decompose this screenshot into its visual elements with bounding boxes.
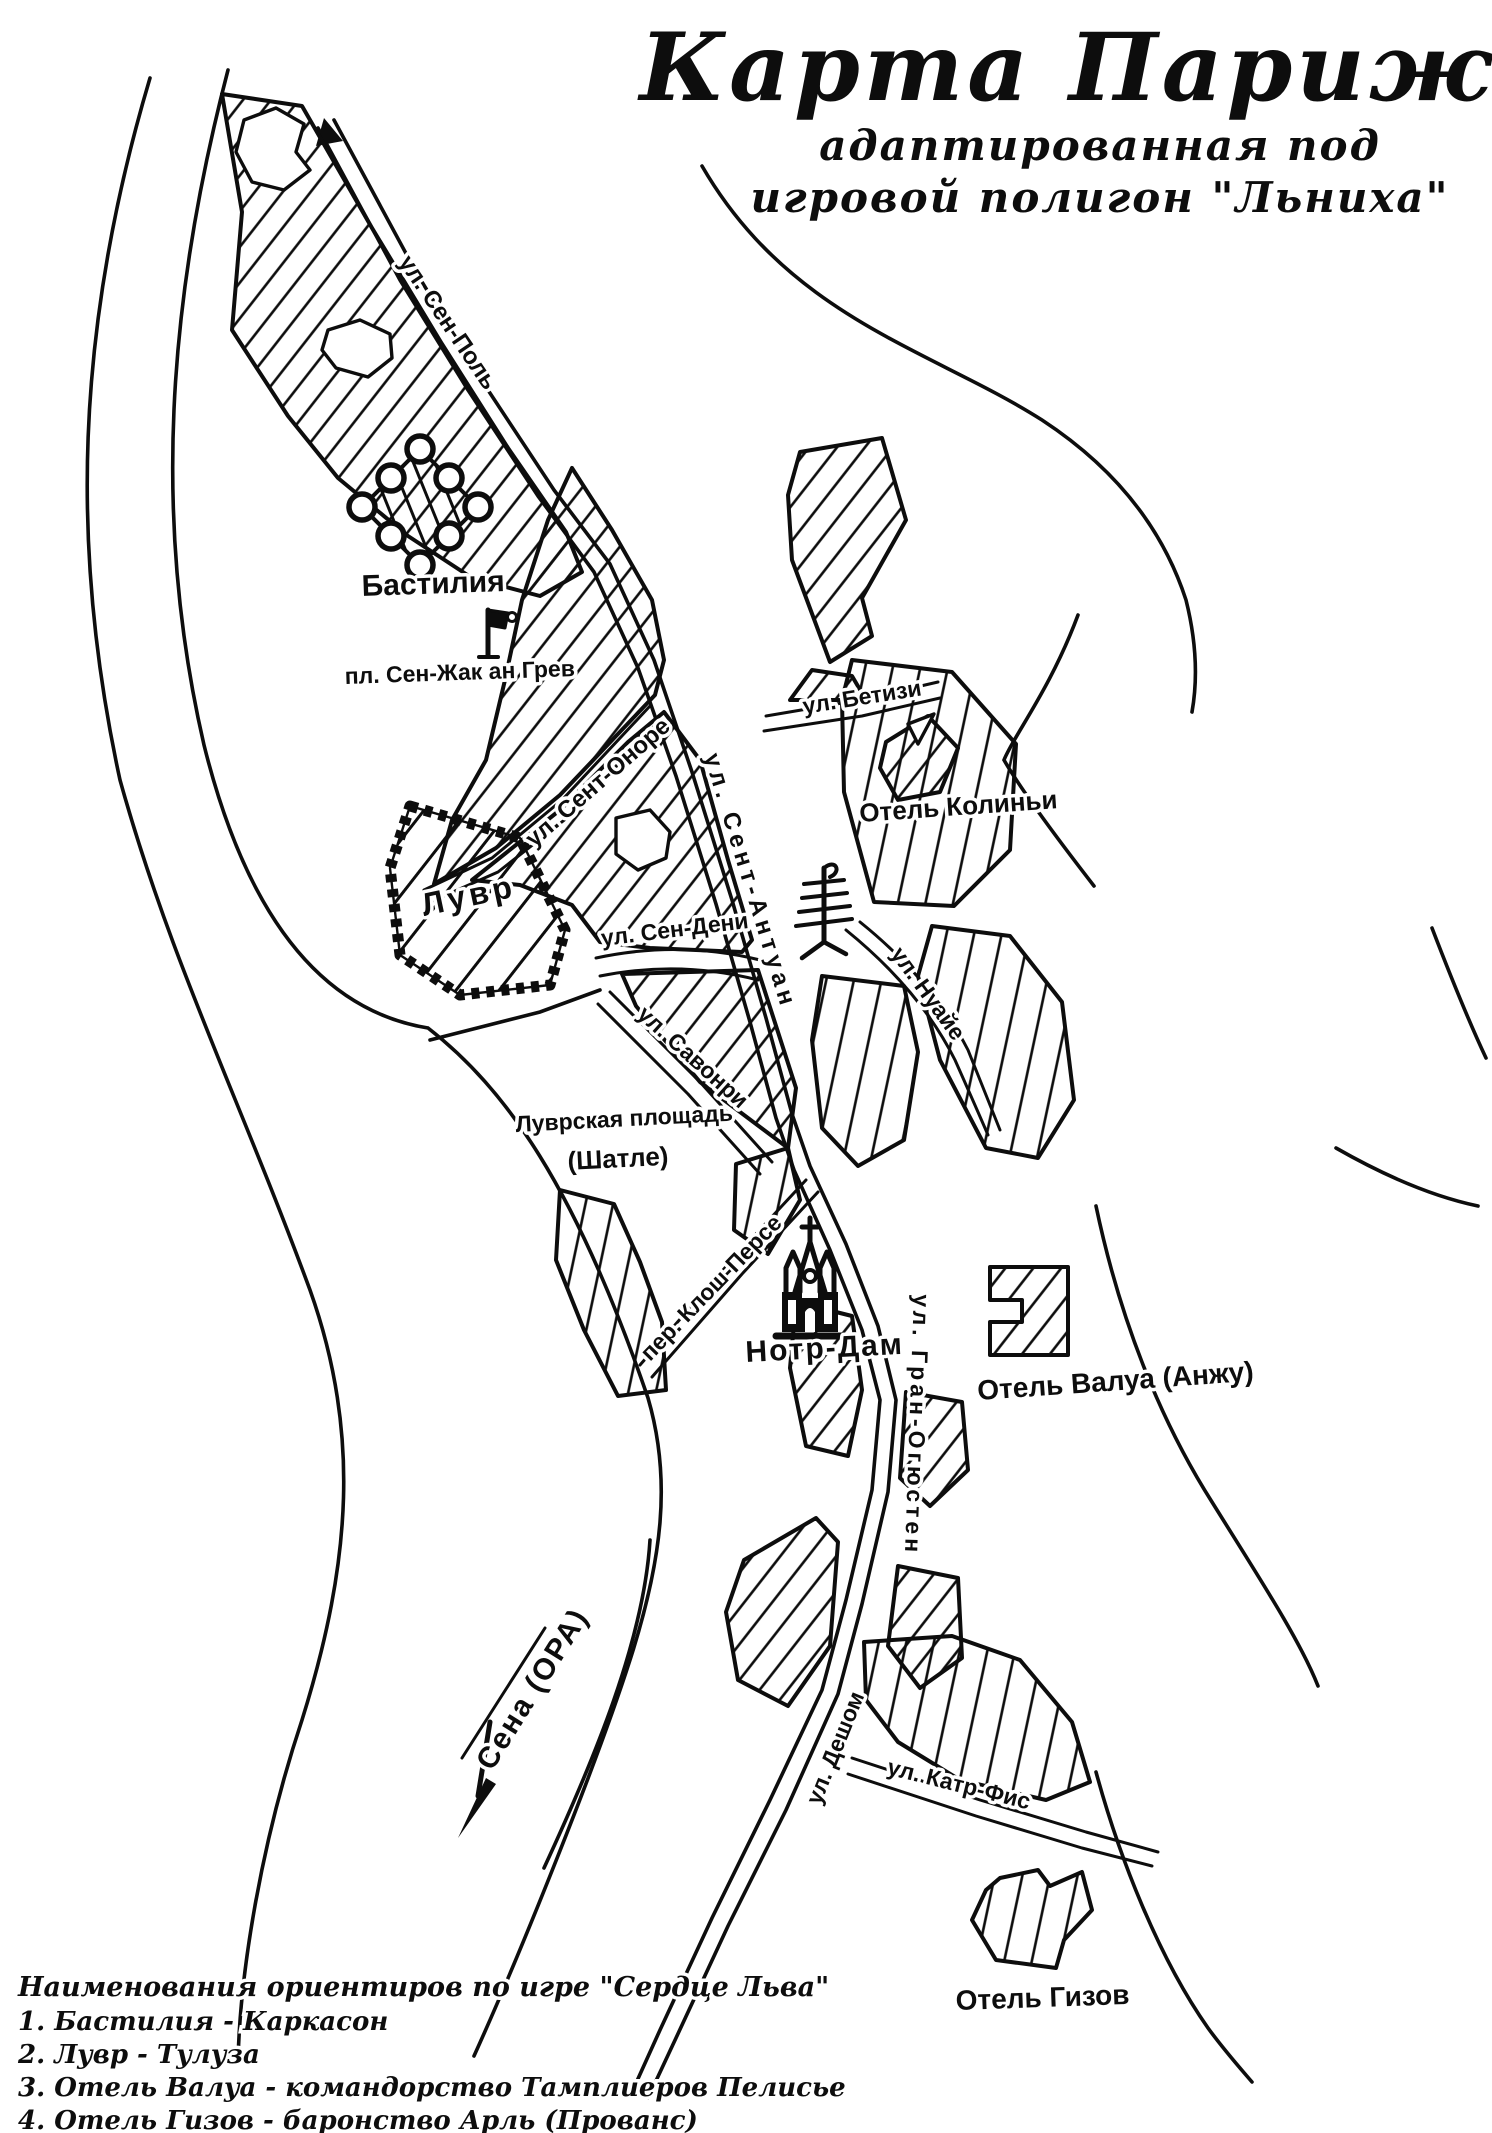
map-canvas: Бастилия пл. Сен-Жак ан Грев Лувр Отель … — [0, 0, 1492, 2133]
title-block: Карта Парижа адаптированная под игровой … — [637, 13, 1492, 222]
legend-item: 2. Лувр - Тулуза — [17, 2040, 260, 2070]
label-bastille: Бастилия — [361, 565, 505, 603]
legend-item: 1. Бастилия - Каркасон — [18, 2007, 388, 2037]
map-subtitle-line2: игровой полигон "Льниха" — [750, 173, 1449, 222]
map-title: Карта Парижа — [637, 13, 1492, 123]
legend-item: 4. Отель Гизов - баронство Арль (Прованс… — [18, 2106, 698, 2133]
label-louvre-square-alt: (Шатле) — [567, 1141, 669, 1176]
map-subtitle-line1: адаптированная под — [819, 121, 1381, 170]
label-hotel-guise: Отель Гизов — [955, 1979, 1130, 2016]
legend-item: 3. Отель Валуа - командорство Тамплиеров… — [18, 2073, 846, 2103]
legend-heading: Наименования ориентиров по игре "Сердце … — [17, 1972, 829, 2003]
hand-drawn-map-page: Бастилия пл. Сен-Жак ан Грев Лувр Отель … — [0, 0, 1492, 2133]
